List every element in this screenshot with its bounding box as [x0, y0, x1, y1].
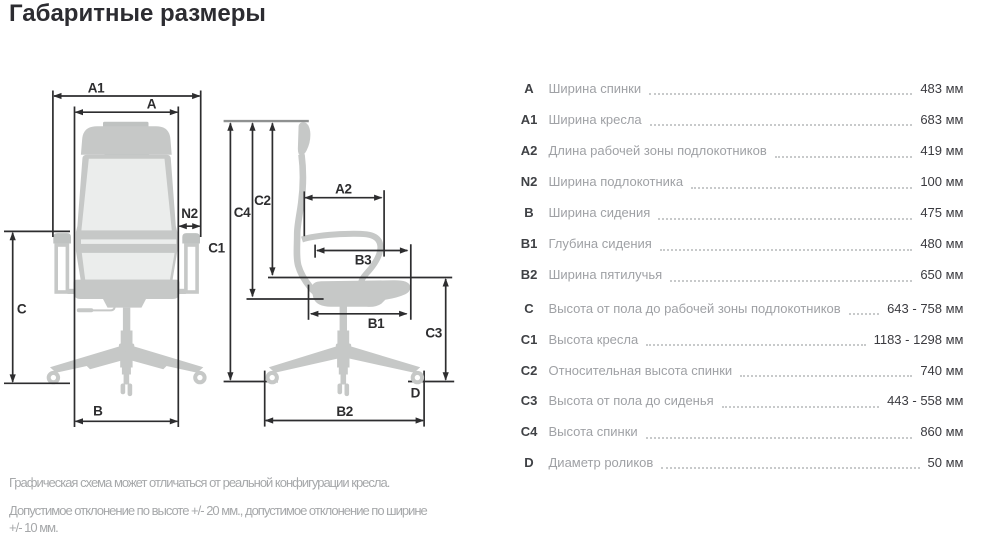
- svg-text:B: B: [93, 404, 103, 419]
- svg-text:C3: C3: [425, 326, 442, 341]
- svg-text:C4: C4: [234, 205, 251, 220]
- svg-text:C1: C1: [208, 241, 225, 256]
- svg-text:C: C: [17, 302, 27, 317]
- svg-text:B1: B1: [368, 316, 385, 331]
- svg-text:D: D: [411, 386, 421, 401]
- svg-text:B3: B3: [355, 252, 372, 267]
- svg-text:N2: N2: [181, 206, 197, 221]
- svg-text:B2: B2: [336, 404, 352, 419]
- svg-text:A1: A1: [88, 81, 105, 96]
- svg-text:C2: C2: [254, 193, 270, 208]
- svg-text:A2: A2: [335, 181, 351, 196]
- svg-text:A: A: [147, 97, 157, 112]
